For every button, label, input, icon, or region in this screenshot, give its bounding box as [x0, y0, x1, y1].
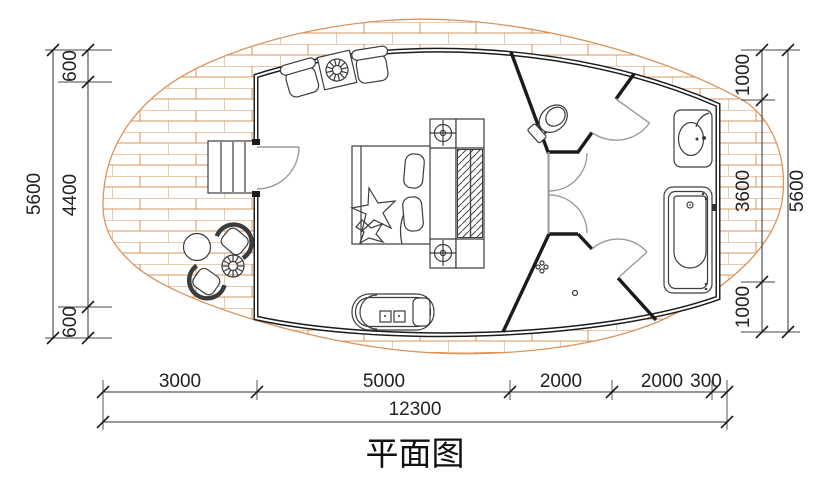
dimension-bottom: 3000 5000 2000 2000 300 12300: [97, 371, 733, 430]
wardrobe: [456, 119, 484, 268]
dim-bottom-300: 300: [690, 371, 722, 392]
entry-door-opening: [250, 145, 261, 192]
page-title: 平面图: [366, 434, 465, 473]
rattan-table: [317, 50, 357, 90]
dimension-left: 5600 600 4400 600: [24, 44, 112, 344]
wall-fixture: [712, 204, 717, 211]
dim-left-4400: 4400: [60, 174, 81, 216]
dim-bottom-2000-a: 2000: [540, 371, 582, 392]
dim-bottom-3000: 3000: [159, 371, 201, 392]
dim-right-3600: 3600: [733, 170, 754, 212]
dim-left-600-bottom: 600: [60, 306, 81, 338]
pillow: [403, 153, 425, 189]
dim-bottom-2000-b: 2000: [641, 371, 683, 392]
chaise-lounge: [352, 294, 434, 330]
double-bed: [352, 146, 432, 244]
outdoor-round-table: [184, 234, 211, 261]
dim-left-600-top: 600: [60, 50, 81, 82]
bathtub: [664, 187, 717, 293]
dim-right-1000-top: 1000: [733, 54, 754, 96]
dim-bottom-total: 12300: [389, 399, 442, 420]
dim-bottom-5000: 5000: [363, 371, 405, 392]
dim-left-total: 5600: [24, 173, 45, 215]
headboard-nightstands: [430, 119, 456, 268]
floor-plan-page: 5600 600 4400 600 1000 3600 1000 5600 30…: [0, 0, 837, 496]
entry-stairs: [208, 141, 256, 193]
dim-right-total: 5600: [787, 170, 808, 212]
dim-right-1000-bottom: 1000: [733, 286, 754, 328]
washbasin: [674, 110, 712, 167]
floor-plan-canvas: 5600 600 4400 600 1000 3600 1000 5600 30…: [0, 0, 837, 496]
pillow: [402, 196, 424, 232]
